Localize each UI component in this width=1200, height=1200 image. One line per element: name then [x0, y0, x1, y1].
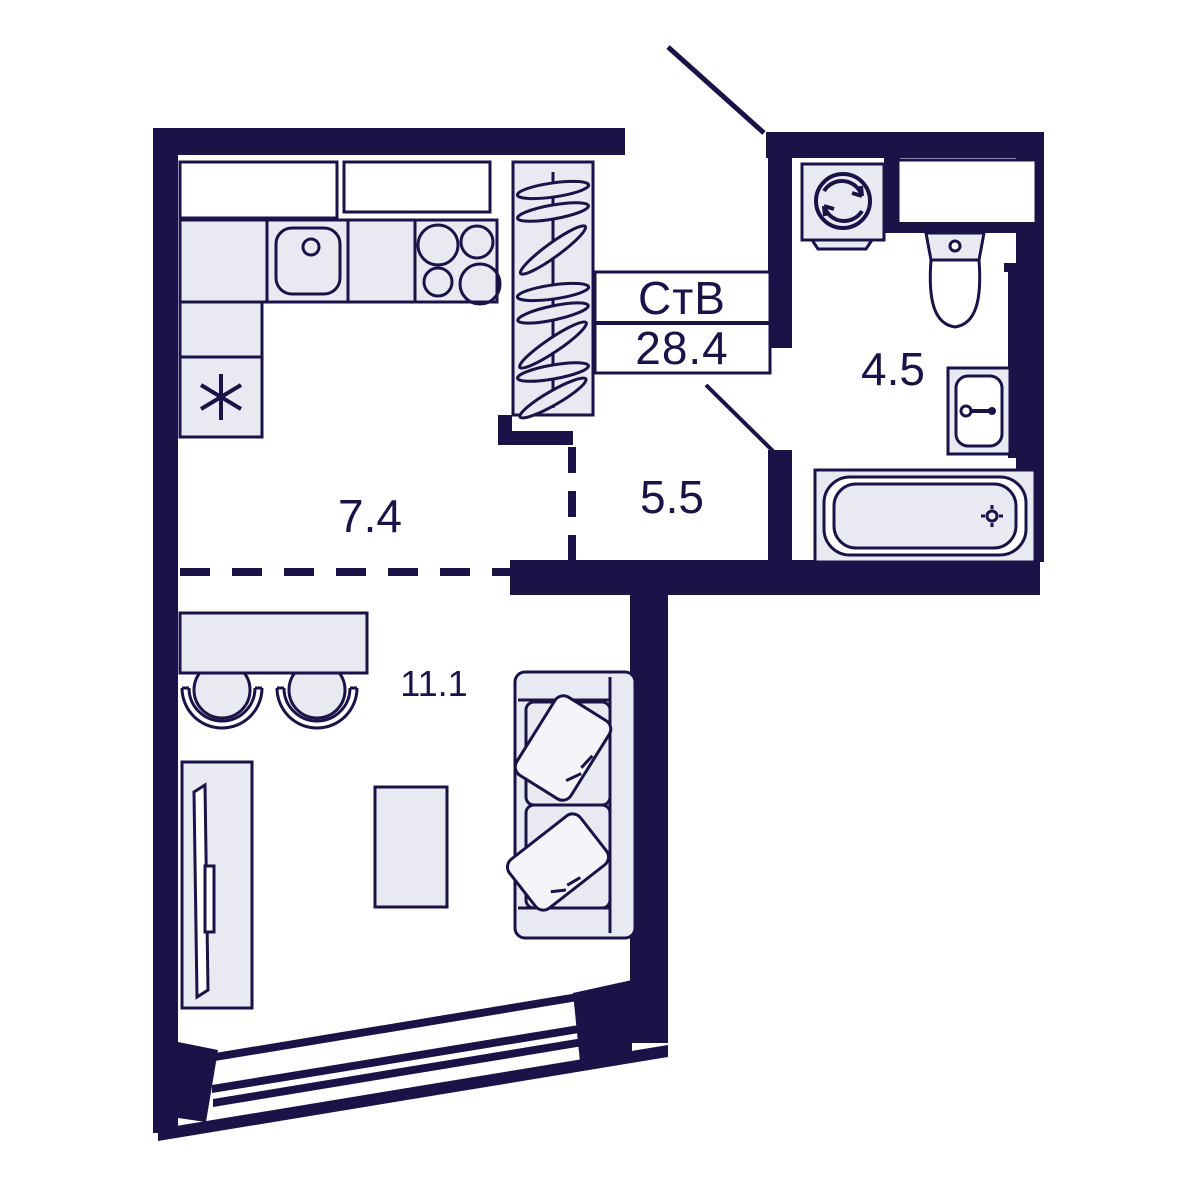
washer-drawer	[812, 240, 872, 249]
wall-bathroom-left-upper	[768, 158, 792, 348]
wall-hall-bottom	[510, 560, 1040, 595]
wardrobe	[513, 162, 593, 423]
wall-bathroom-left-lower	[768, 450, 792, 562]
hallway-area-label: 5.5	[640, 471, 704, 523]
window-line	[212, 1024, 585, 1093]
wall-window-right-block	[573, 980, 632, 1062]
floor-plan: 7.4 5.5 4.5 11.1 СтВ 28.4	[0, 0, 1200, 1200]
toilet-bowl	[930, 260, 979, 327]
living-area-label: 11.1	[400, 663, 467, 704]
wall-left	[153, 128, 178, 1133]
sink-faucet-handle	[988, 407, 996, 415]
unit-label-box: СтВ 28.4	[595, 272, 770, 374]
sofa-icon	[503, 672, 635, 938]
tv-stand	[182, 762, 252, 1008]
wall-top-kitchen	[153, 128, 625, 155]
kitchen-counter-2	[348, 220, 415, 302]
unit-type-label: СтВ	[638, 272, 726, 324]
toilet-icon	[926, 233, 984, 327]
bathroom-sink-icon	[948, 368, 1010, 454]
kitchen-cabinet-left	[180, 162, 337, 218]
kitchen-area-label: 7.4	[338, 490, 402, 542]
bathroom-door-leaf	[706, 385, 779, 457]
washing-machine-icon	[802, 164, 884, 249]
wall-stub-wardrobe-h	[498, 431, 573, 445]
toilet-button	[950, 241, 960, 251]
kitchen-counter-1	[180, 220, 267, 302]
wall-top-bathroom	[766, 132, 1040, 158]
unit-area-label: 28.4	[635, 322, 729, 374]
kitchen-cabinet-right	[344, 162, 490, 212]
kitchen-counter-3	[180, 302, 262, 357]
bathtub-icon	[815, 470, 1035, 562]
duct-cabinet	[898, 160, 1036, 233]
sink-drain	[961, 406, 971, 416]
fridge-icon	[180, 357, 262, 437]
stove-icon	[415, 220, 500, 304]
dining-table	[180, 613, 367, 673]
kitchen-fixtures	[180, 162, 500, 437]
tv-mount	[205, 866, 214, 932]
bathtub-inner	[834, 484, 1016, 548]
kitchen-sink	[267, 220, 348, 302]
tv-stand-box	[182, 762, 252, 1008]
bathroom-area-label: 4.5	[861, 343, 925, 395]
entrance-door-leaf	[668, 47, 764, 133]
coffee-table	[375, 787, 447, 907]
